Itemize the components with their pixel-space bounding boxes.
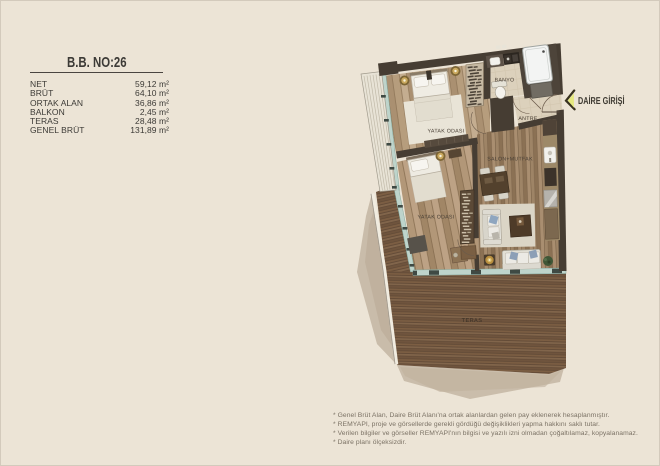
svg-text:DAİRE GİRİŞİ: DAİRE GİRİŞİ <box>578 95 625 107</box>
svg-text:ANTRE: ANTRE <box>518 116 537 122</box>
svg-text:TERAS: TERAS <box>462 318 483 324</box>
svg-text:YATAK ODASI: YATAK ODASI <box>418 215 455 221</box>
svg-text:YATAK ODASI: YATAK ODASI <box>428 129 465 135</box>
svg-text:SALON+MUTFAK: SALON+MUTFAK <box>487 157 533 163</box>
svg-text:BANYO: BANYO <box>495 78 515 84</box>
